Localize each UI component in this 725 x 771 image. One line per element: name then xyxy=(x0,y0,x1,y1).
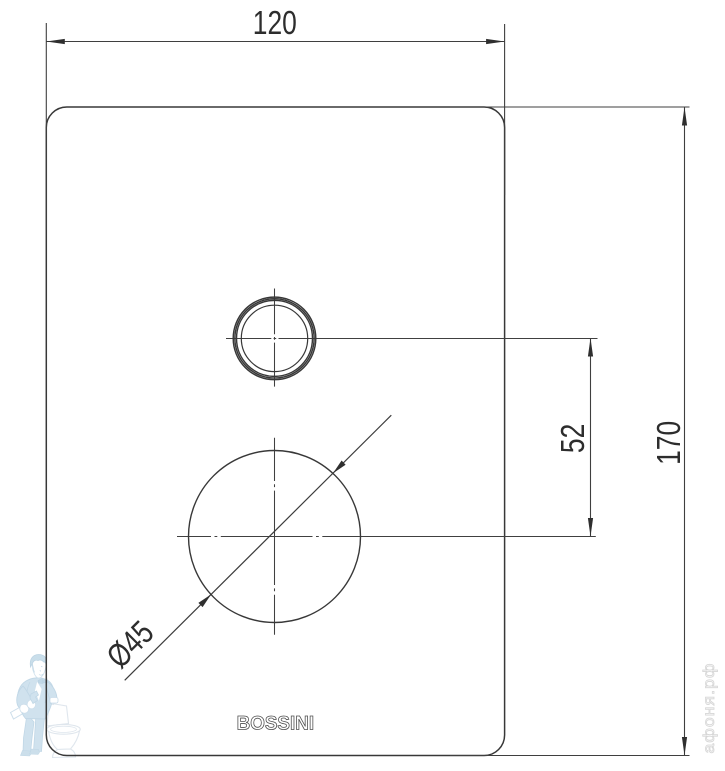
svg-text:афоня.рф: афоня.рф xyxy=(701,663,718,754)
svg-text:BOSSINI: BOSSINI xyxy=(237,712,315,734)
svg-text:120: 120 xyxy=(253,5,297,41)
svg-text:170: 170 xyxy=(651,421,687,465)
svg-text:52: 52 xyxy=(555,424,591,453)
svg-text:Ø45: Ø45 xyxy=(100,614,161,675)
